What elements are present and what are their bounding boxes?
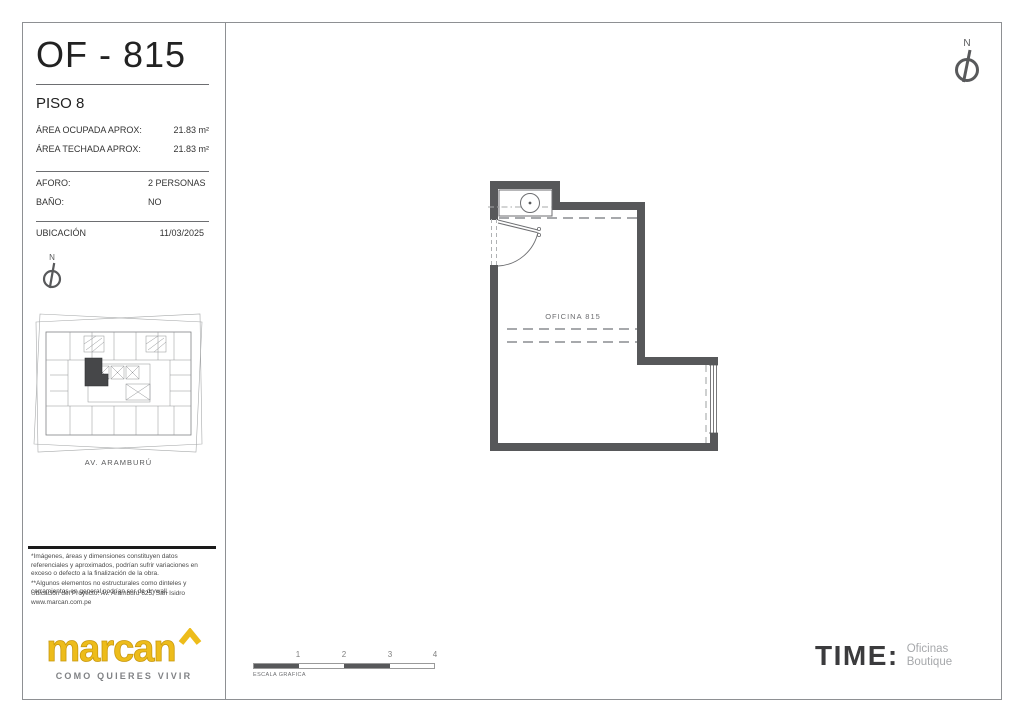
bano-row: BAÑO: NO [36, 197, 209, 207]
disclaimer-line-1: *Imágenes, áreas y dimensiones constituy… [31, 553, 213, 579]
scale-segment [299, 664, 345, 668]
marcan-logo: marcan COMO QUIERES VIVIR [22, 630, 226, 681]
area-ocupada-label: ÁREA OCUPADA APROX: [36, 125, 142, 135]
divider [36, 171, 209, 172]
time-wordmark: TIME: [815, 642, 899, 670]
keyplan-svg [30, 310, 207, 457]
unit-title: OF - 815 [36, 34, 186, 76]
divider [36, 221, 209, 222]
website: www.marcan.com.pe [31, 599, 213, 608]
scale-tick-3: 3 [388, 650, 392, 659]
room-label: OFICINA 815 [545, 312, 601, 321]
plan-sheet: OF - 815 PISO 8 ÁREA OCUPADA APROX: 21.8… [0, 0, 1024, 724]
area-techada-label: ÁREA TECHADA APROX: [36, 144, 141, 154]
area-ocupada-row: ÁREA OCUPADA APROX: 21.83 m² [36, 125, 209, 135]
north-letter: N [49, 253, 55, 262]
aforo-label: AFORO: [36, 178, 71, 188]
ubicacion-row: UBICACIÓN 11/03/2025 [36, 228, 209, 238]
divider [36, 84, 209, 85]
floor-label: PISO 8 [36, 95, 84, 112]
area-techada-value: 21.83 m² [173, 144, 209, 154]
aforo-row: AFORO: 2 PERSONAS [36, 178, 209, 188]
marcan-tagline: COMO QUIERES VIVIR [22, 671, 226, 681]
scale-bar-label: ESCALA GRAFICA [253, 672, 306, 678]
scale-bar-segments [253, 663, 435, 669]
scale-bar: 1 2 3 4 ESCALA GRAFICA [253, 650, 439, 680]
marcan-wordmark: marcan [46, 630, 175, 668]
time-logo: TIME: Oficinas Boutique [815, 642, 952, 670]
time-subtitle: Oficinas Boutique [907, 643, 952, 669]
scale-tick-2: 2 [342, 650, 346, 659]
floor-plan-svg: OFICINA 815 [480, 172, 725, 462]
scale-segment [254, 664, 299, 668]
ubicacion-label: UBICACIÓN [36, 228, 86, 238]
time-subtitle-line2: Boutique [907, 656, 952, 669]
floor-plan: OFICINA 815 [480, 172, 725, 462]
ubicacion-date: 11/03/2025 [160, 228, 204, 238]
entry-door [492, 219, 541, 266]
walls [490, 181, 718, 451]
door-leaf [498, 220, 538, 233]
north-compass-icon: N [40, 250, 64, 296]
marcan-caret-icon [178, 628, 202, 646]
area-techada-row: ÁREA TECHADA APROX: 21.83 m² [36, 144, 209, 154]
bano-value: NO [148, 197, 162, 207]
area-ocupada-value: 21.83 m² [173, 125, 209, 135]
north-letter: N [963, 38, 970, 49]
projection-dashes [499, 218, 637, 342]
scale-segment [344, 664, 390, 668]
bano-label: BAÑO: [36, 197, 64, 207]
door-swing-arc [498, 232, 538, 266]
title-block-sidebar: OF - 815 PISO 8 ÁREA OCUPADA APROX: 21.8… [22, 22, 226, 700]
project-address: Ubicación del Proyecto: Av. Aramburú 625… [31, 590, 213, 599]
divider-heavy [28, 546, 216, 549]
scale-tick-4: 4 [433, 650, 437, 659]
north-compass-icon: N [948, 34, 986, 90]
project-address-block: Ubicación del Proyecto: Av. Aramburú 625… [31, 590, 213, 608]
window [706, 365, 718, 443]
keyplan-street-label: AV. ARAMBURÚ [30, 458, 207, 467]
keyplan [30, 310, 207, 457]
aforo-value: 2 PERSONAS [148, 178, 206, 188]
scale-segment [390, 664, 435, 668]
time-subtitle-line1: Oficinas [907, 643, 952, 656]
scale-tick-1: 1 [296, 650, 300, 659]
